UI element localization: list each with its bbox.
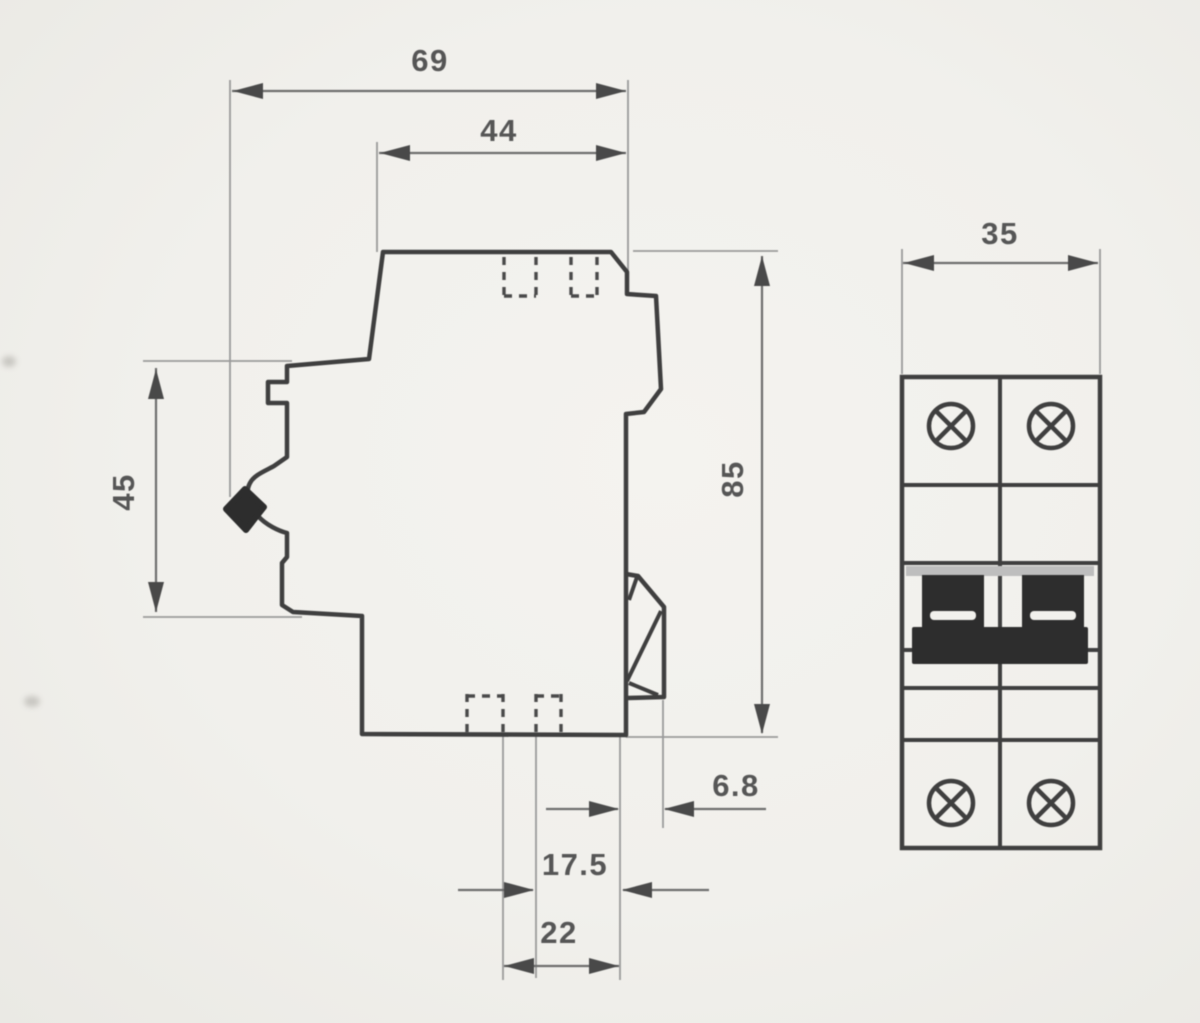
dim-label-base-depth: 22 xyxy=(540,915,577,951)
dim-label-upper-depth: 44 xyxy=(480,113,517,149)
recess-shading xyxy=(906,566,1094,576)
din-clip-hook xyxy=(629,577,637,600)
drawing-sheet: 69 44 45 85 6.8 17.5 22 35 xyxy=(0,0,1200,1023)
bottom-terminal-hidden-1 xyxy=(467,694,503,732)
din-clip xyxy=(626,574,664,698)
scan-smudge xyxy=(2,356,16,367)
scanned-drawing-page: 69 44 45 85 6.8 17.5 22 35 xyxy=(0,0,1200,1023)
dim-label-terminal-inset: 17.5 xyxy=(542,847,608,883)
arrow-85-top xyxy=(754,256,770,286)
arrow-17-5-left xyxy=(504,882,534,898)
arrow-35-left xyxy=(904,255,934,271)
dim-label-clip-offset: 6.8 xyxy=(712,768,760,804)
arrow-69-left xyxy=(233,83,263,99)
screw-head-icon xyxy=(1029,404,1073,448)
top-terminal-hidden-1 xyxy=(504,257,536,298)
toggle-marker-left xyxy=(930,611,976,620)
arrow-35-right xyxy=(1068,255,1098,271)
arrow-69-right xyxy=(596,83,626,99)
toggle-switch-left xyxy=(922,575,984,631)
din-clip-wedge xyxy=(629,683,658,695)
arrow-45-bottom xyxy=(148,582,164,612)
arrow-22-right xyxy=(589,958,619,974)
toggle-marker-right xyxy=(1030,611,1076,620)
toggle-tie-bar xyxy=(912,627,1088,664)
toggle-lever xyxy=(226,489,264,530)
breaker-body-outline xyxy=(248,252,661,735)
bottom-terminal-hidden-2 xyxy=(536,694,561,732)
hidden-terminal-lines xyxy=(467,257,597,732)
din-clip-diagonal xyxy=(627,611,661,681)
screw-head-icon xyxy=(929,404,973,448)
extension-lines xyxy=(143,80,778,980)
arrow-45-top xyxy=(148,369,164,399)
screw-head-icon xyxy=(1029,781,1073,825)
arrow-17-5-right xyxy=(622,882,652,898)
scan-smudge xyxy=(24,696,40,707)
dim-label-overall-depth: 69 xyxy=(411,43,448,79)
arrow-85-bottom xyxy=(754,704,770,734)
screw-head-icon xyxy=(929,781,973,825)
toggle-switch-right xyxy=(1022,575,1084,631)
arrow-6-8-right xyxy=(664,801,694,817)
arrow-6-8-left xyxy=(589,801,619,817)
arrow-44-left xyxy=(380,145,410,161)
side-view xyxy=(143,80,778,980)
top-terminal-hidden-2 xyxy=(571,257,597,298)
arrow-44-right xyxy=(596,145,626,161)
dimension-35 xyxy=(902,249,1100,374)
dim-label-overall-height: 85 xyxy=(715,460,751,497)
arrow-22-left xyxy=(504,958,534,974)
dim-label-front-height: 45 xyxy=(106,473,142,510)
dim-label-pole-width: 35 xyxy=(981,216,1018,252)
front-view xyxy=(902,249,1100,848)
